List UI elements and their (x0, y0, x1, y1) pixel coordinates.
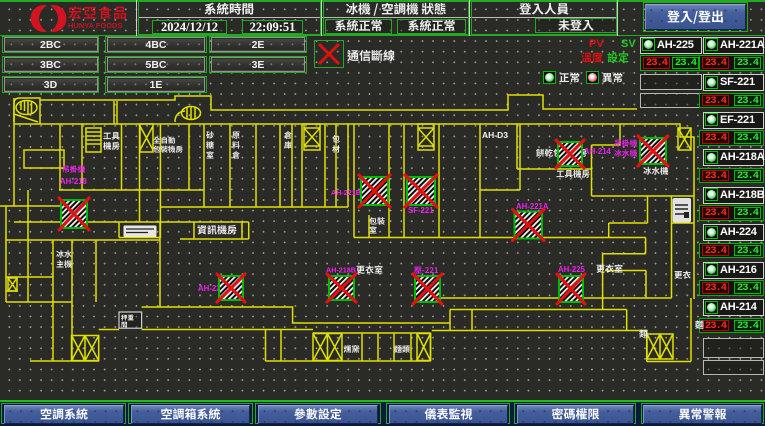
svg-text:AH-218B: AH-218B (326, 266, 356, 275)
svg-text:AH-221B: AH-221B (331, 188, 361, 197)
svg-text:AH-218: AH-218 (60, 177, 88, 186)
svg-text:AH-214: AH-214 (584, 147, 612, 156)
svg-text:SF-221: SF-221 (408, 206, 434, 215)
svg-text:AH-D3: AH-D3 (482, 130, 508, 140)
svg-text:AH-225: AH-225 (558, 265, 586, 274)
